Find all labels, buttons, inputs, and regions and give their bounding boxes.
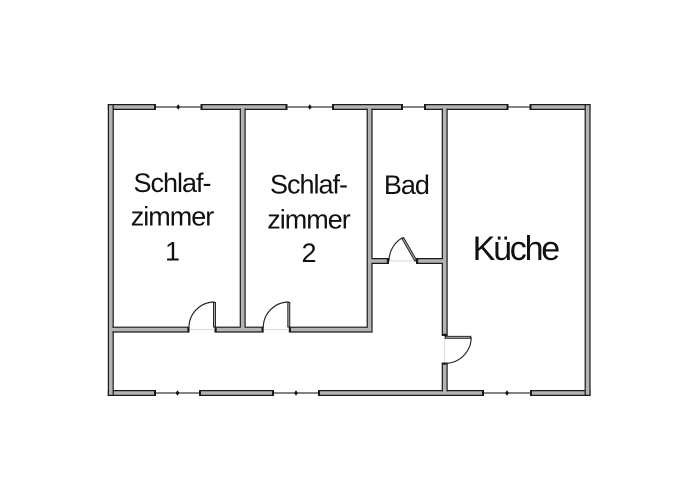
svg-text:Bad: Bad bbox=[384, 170, 429, 200]
svg-text:Schlaf-: Schlaf- bbox=[270, 170, 347, 200]
svg-text:Schlaf-: Schlaf- bbox=[133, 168, 210, 198]
svg-text:1: 1 bbox=[165, 237, 179, 267]
svg-text:zimmer: zimmer bbox=[267, 205, 350, 235]
svg-text:zimmer: zimmer bbox=[131, 202, 214, 232]
svg-text:Küche: Küche bbox=[473, 230, 560, 268]
svg-text:2: 2 bbox=[301, 238, 315, 268]
